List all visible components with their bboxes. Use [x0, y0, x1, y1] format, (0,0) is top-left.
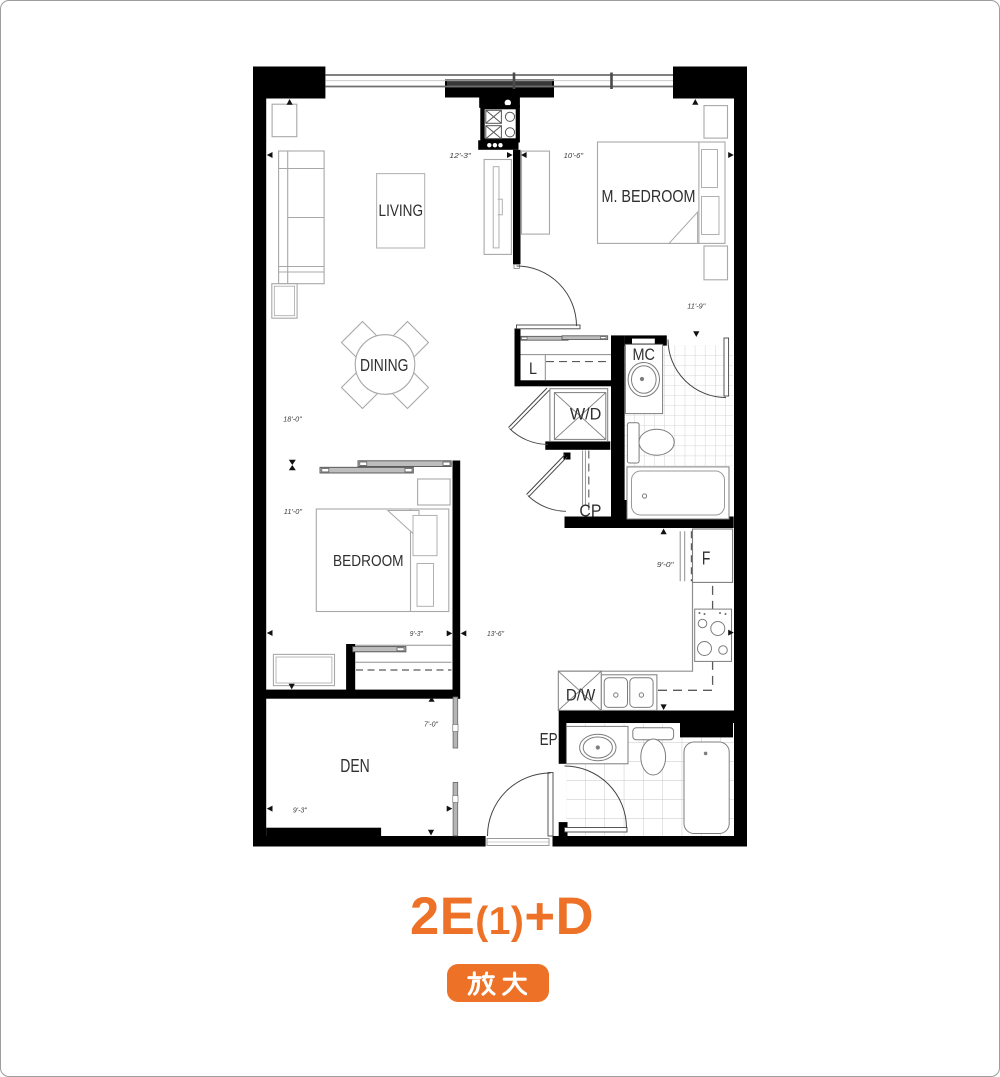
svg-text:DEN: DEN [340, 755, 370, 776]
svg-text:F: F [702, 549, 711, 569]
svg-text:9'-3": 9'-3" [293, 806, 307, 815]
svg-text:D/W: D/W [566, 686, 596, 705]
svg-text:BEDROOM: BEDROOM [333, 553, 404, 570]
svg-text:DINING: DINING [360, 355, 409, 375]
svg-text:M. BEDROOM: M. BEDROOM [602, 186, 696, 206]
svg-text:9'-0": 9'-0" [657, 560, 674, 569]
svg-text:10'-6": 10'-6" [564, 151, 584, 160]
svg-text:CP: CP [579, 500, 601, 520]
svg-text:7'-0": 7'-0" [424, 720, 438, 729]
svg-text:18'-0": 18'-0" [283, 415, 302, 424]
svg-text:13'-6": 13'-6" [487, 629, 504, 638]
svg-text:MC: MC [632, 346, 655, 364]
svg-text:LIVING: LIVING [379, 202, 424, 220]
svg-text:12'-3": 12'-3" [449, 151, 471, 160]
svg-text:11'-0": 11'-0" [284, 507, 302, 516]
svg-text:9'-3": 9'-3" [410, 629, 423, 638]
svg-text:EP: EP [540, 729, 558, 749]
svg-text:W/D: W/D [570, 405, 602, 424]
svg-text:L: L [529, 360, 537, 378]
svg-text:11'-9": 11'-9" [687, 301, 705, 310]
